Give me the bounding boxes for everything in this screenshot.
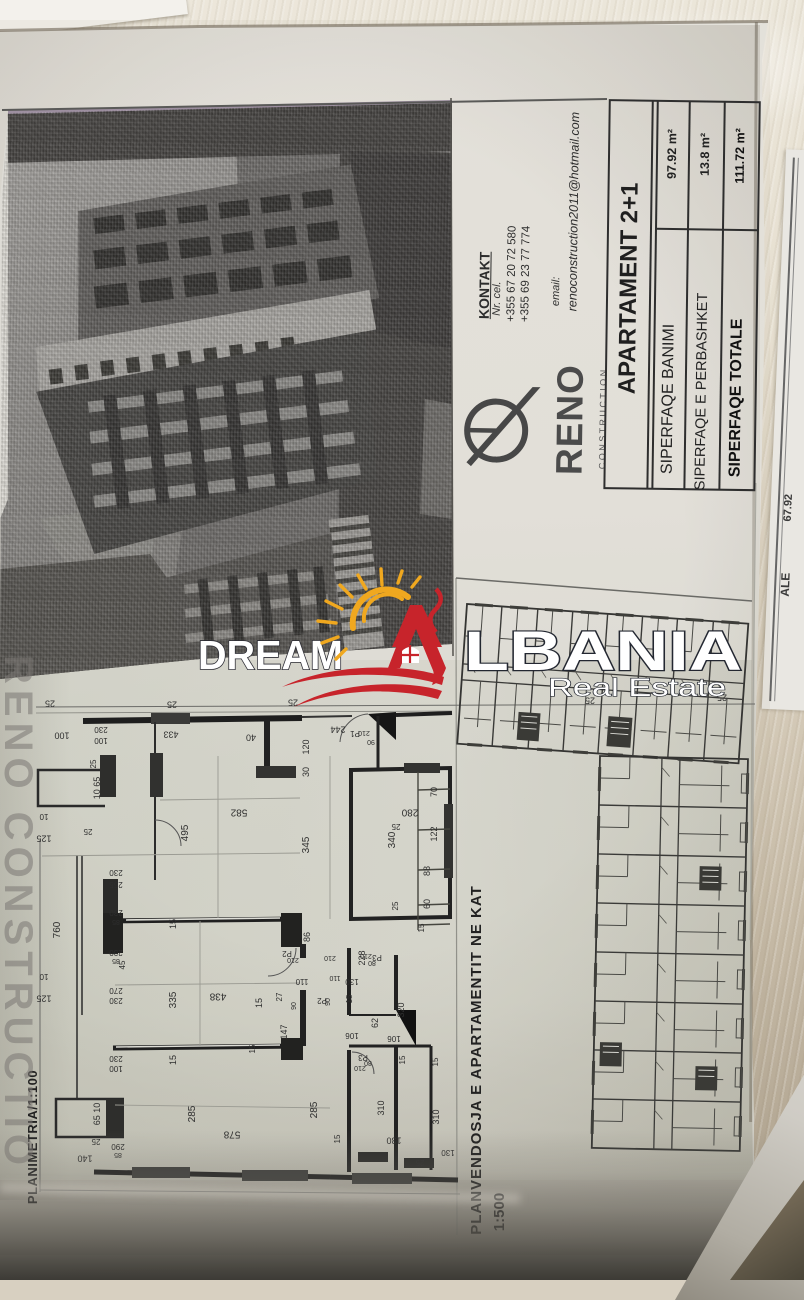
svg-text:230: 230 <box>109 908 123 917</box>
svg-text:438: 438 <box>209 990 226 1001</box>
svg-text:495: 495 <box>180 824 191 841</box>
svg-text:230: 230 <box>94 725 108 734</box>
svg-text:30: 30 <box>301 767 311 777</box>
svg-text:Real Estate: Real Estate <box>548 674 726 702</box>
svg-text:122: 122 <box>429 826 439 841</box>
svg-text:25: 25 <box>391 822 400 831</box>
svg-text:110: 110 <box>295 977 308 986</box>
svg-text:130: 130 <box>345 977 359 986</box>
svg-text:85: 85 <box>112 918 120 925</box>
svg-text:230: 230 <box>109 1054 123 1063</box>
svg-text:15: 15 <box>168 1055 178 1065</box>
svg-text:88: 88 <box>422 866 432 876</box>
svg-text:270: 270 <box>109 986 123 995</box>
svg-text:25: 25 <box>89 759 98 768</box>
svg-text:25: 25 <box>83 827 92 836</box>
svg-text:P2: P2 <box>317 996 327 1005</box>
svg-text:90: 90 <box>291 1002 298 1010</box>
svg-text:310: 310 <box>376 1100 386 1115</box>
svg-text:210: 210 <box>360 952 372 959</box>
svg-text:90: 90 <box>367 738 375 745</box>
svg-text:P3: P3 <box>372 953 382 962</box>
svg-text:285: 285 <box>309 1101 320 1118</box>
svg-text:110: 110 <box>329 974 340 981</box>
svg-text:760: 760 <box>52 921 63 938</box>
svg-text:15: 15 <box>254 998 264 1008</box>
svg-text:345: 345 <box>301 836 312 853</box>
svg-text:244: 244 <box>330 725 345 735</box>
svg-text:10 65: 10 65 <box>92 777 102 800</box>
svg-text:106: 106 <box>345 1031 359 1040</box>
svg-text:70: 70 <box>429 787 439 797</box>
svg-text:340: 340 <box>387 831 398 848</box>
svg-text:15: 15 <box>345 994 354 1003</box>
svg-text:120: 120 <box>301 739 311 754</box>
svg-text:100: 100 <box>109 1064 123 1073</box>
svg-text:P1: P1 <box>350 729 360 738</box>
svg-text:106: 106 <box>387 1034 401 1043</box>
svg-text:LBANIA: LBANIA <box>464 619 742 682</box>
svg-text:230: 230 <box>109 996 123 1005</box>
svg-text:210: 210 <box>324 954 336 961</box>
svg-text:15: 15 <box>248 1044 257 1053</box>
svg-text:15: 15 <box>168 919 178 929</box>
svg-text:582: 582 <box>230 806 247 817</box>
svg-text:335: 335 <box>168 991 179 1008</box>
svg-text:255: 255 <box>109 880 123 889</box>
svg-text:285: 285 <box>187 1105 198 1122</box>
svg-text:62: 62 <box>370 1018 380 1028</box>
svg-text:100: 100 <box>94 736 108 745</box>
svg-text:DREAM: DREAM <box>198 632 343 678</box>
svg-text:147: 147 <box>279 1024 289 1039</box>
svg-text:25: 25 <box>45 699 55 709</box>
svg-text:60: 60 <box>422 899 432 909</box>
svg-text:310: 310 <box>431 1109 441 1124</box>
svg-text:230: 230 <box>109 868 123 877</box>
svg-text:320: 320 <box>396 1002 406 1017</box>
svg-text:40: 40 <box>246 733 256 743</box>
svg-text:86: 86 <box>302 932 312 942</box>
svg-text:230: 230 <box>109 948 123 957</box>
svg-text:15: 15 <box>398 1055 407 1064</box>
svg-text:280: 280 <box>401 806 418 817</box>
svg-text:25: 25 <box>391 901 400 910</box>
svg-text:210: 210 <box>354 1064 366 1071</box>
svg-text:15: 15 <box>431 1057 440 1066</box>
svg-text:100: 100 <box>54 731 69 741</box>
svg-text:15: 15 <box>417 923 426 932</box>
svg-text:P2: P2 <box>282 949 292 958</box>
svg-text:433: 433 <box>163 730 178 740</box>
svg-text:65 10: 65 10 <box>92 1103 102 1126</box>
svg-text:27: 27 <box>275 992 284 1001</box>
svg-text:85: 85 <box>112 957 120 964</box>
